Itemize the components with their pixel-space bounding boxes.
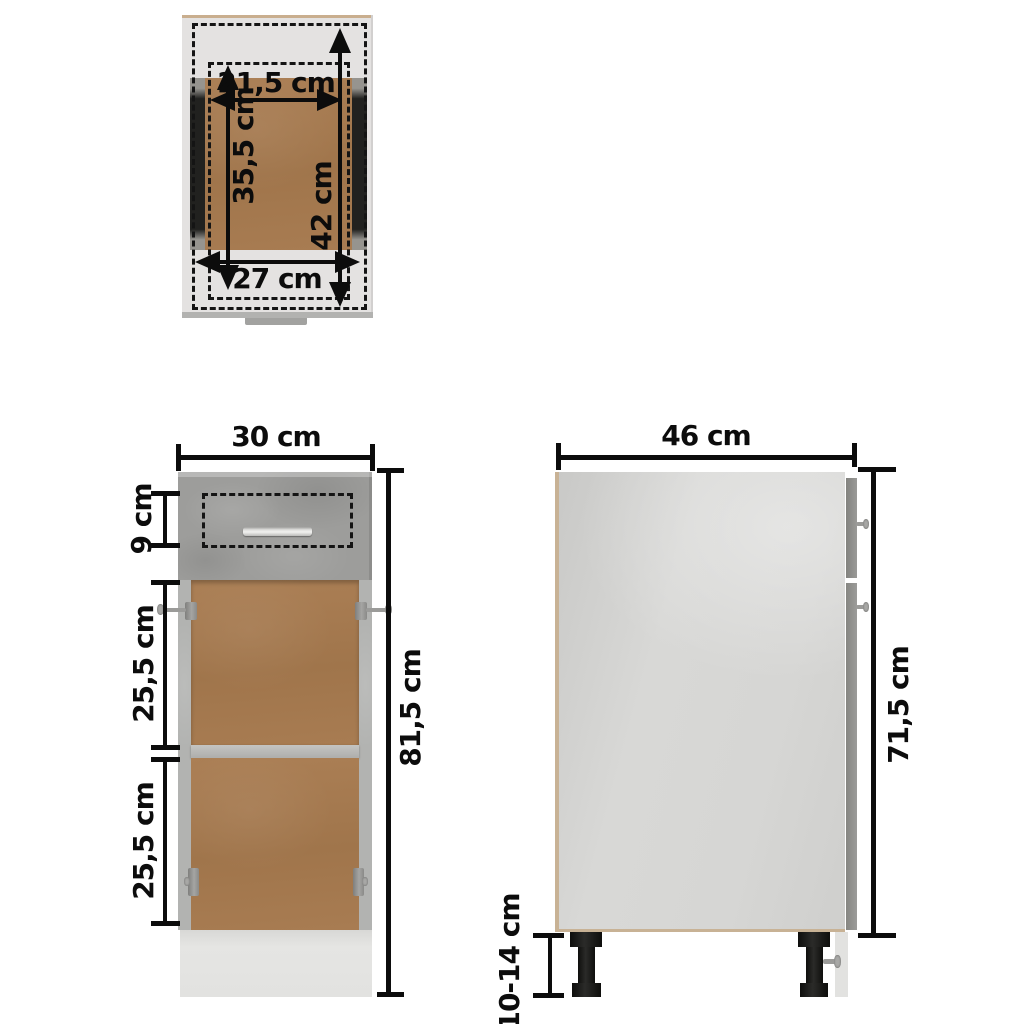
dim-tick <box>151 921 180 926</box>
dim-tick <box>858 933 896 938</box>
hinge-upper-left <box>185 602 197 620</box>
dim-label-leg-height: 10-14 cm <box>496 893 524 1024</box>
leg-back-foot <box>572 983 601 997</box>
compartment-upper-back <box>191 580 359 745</box>
dim-line-height <box>386 470 391 995</box>
dim-tick <box>858 467 896 472</box>
plinth-panel <box>180 930 372 997</box>
hinge-knob-lower-right <box>362 877 368 886</box>
dim-label-upper-compartment: 25,5 cm <box>130 605 158 723</box>
dim-tick <box>533 993 564 998</box>
dim-line-carcass-height <box>871 469 876 937</box>
dim-label-width: 30 cm <box>231 423 321 451</box>
bracket-leg-height <box>548 935 552 997</box>
hinge-upper-right <box>355 602 367 620</box>
leg-front-cap <box>798 932 830 947</box>
dim-label-front-width: 27 cm <box>232 265 322 293</box>
leg-front-foot <box>800 983 828 997</box>
dim-label-depth: 46 cm <box>661 422 751 450</box>
dim-label-inner-depth: 35,5 cm <box>230 87 258 205</box>
drawer-front-outline <box>202 493 353 548</box>
cabinet-dimension-diagram: 21,5 cm 35,5 cm 42 cm 27 cm 30 cm <box>0 0 1024 1024</box>
front-edge-drawer <box>846 478 857 578</box>
leg-back-stem <box>578 947 595 985</box>
arrow-shaft <box>338 48 342 287</box>
dim-tick <box>370 444 375 471</box>
arrowhead-up <box>329 28 351 53</box>
leg-back-cap <box>570 932 602 947</box>
side-panel <box>555 472 845 932</box>
dim-tick <box>151 745 180 750</box>
dim-label-height: 81,5 cm <box>397 649 425 767</box>
bracket-upper-compartment <box>163 582 167 749</box>
dim-tick <box>556 443 561 470</box>
dim-tick <box>176 444 181 471</box>
compartment-lower-back <box>191 758 359 930</box>
leg-screw-knob <box>834 955 841 968</box>
drawer-handle-side-knob <box>863 519 869 529</box>
drawer-handle <box>243 527 312 536</box>
bracket-lower-compartment <box>163 759 167 925</box>
dim-tick <box>377 468 404 473</box>
door-handle-side-knob <box>863 602 869 612</box>
dim-tick <box>852 443 857 467</box>
bracket-drawer-height <box>163 493 167 548</box>
dim-tick <box>377 992 404 997</box>
front-edge-door <box>846 583 857 930</box>
shelf-edge <box>191 745 359 758</box>
dim-line-depth <box>558 455 857 460</box>
arrowhead-down <box>329 282 351 307</box>
dim-tick <box>151 757 180 762</box>
leg-front-stem <box>806 947 823 985</box>
hinge-knob-lower-left <box>184 877 190 886</box>
dim-tick <box>151 580 180 585</box>
dim-line-width <box>178 455 374 460</box>
dim-label-lower-compartment: 25,5 cm <box>130 782 158 900</box>
dim-label-drawer-height: 9 cm <box>128 483 156 554</box>
dim-label-slide-depth: 42 cm <box>308 161 336 251</box>
dim-tick <box>533 933 564 938</box>
dim-label-carcass-height: 71,5 cm <box>885 646 913 764</box>
top-view-handle-edge <box>245 318 307 325</box>
